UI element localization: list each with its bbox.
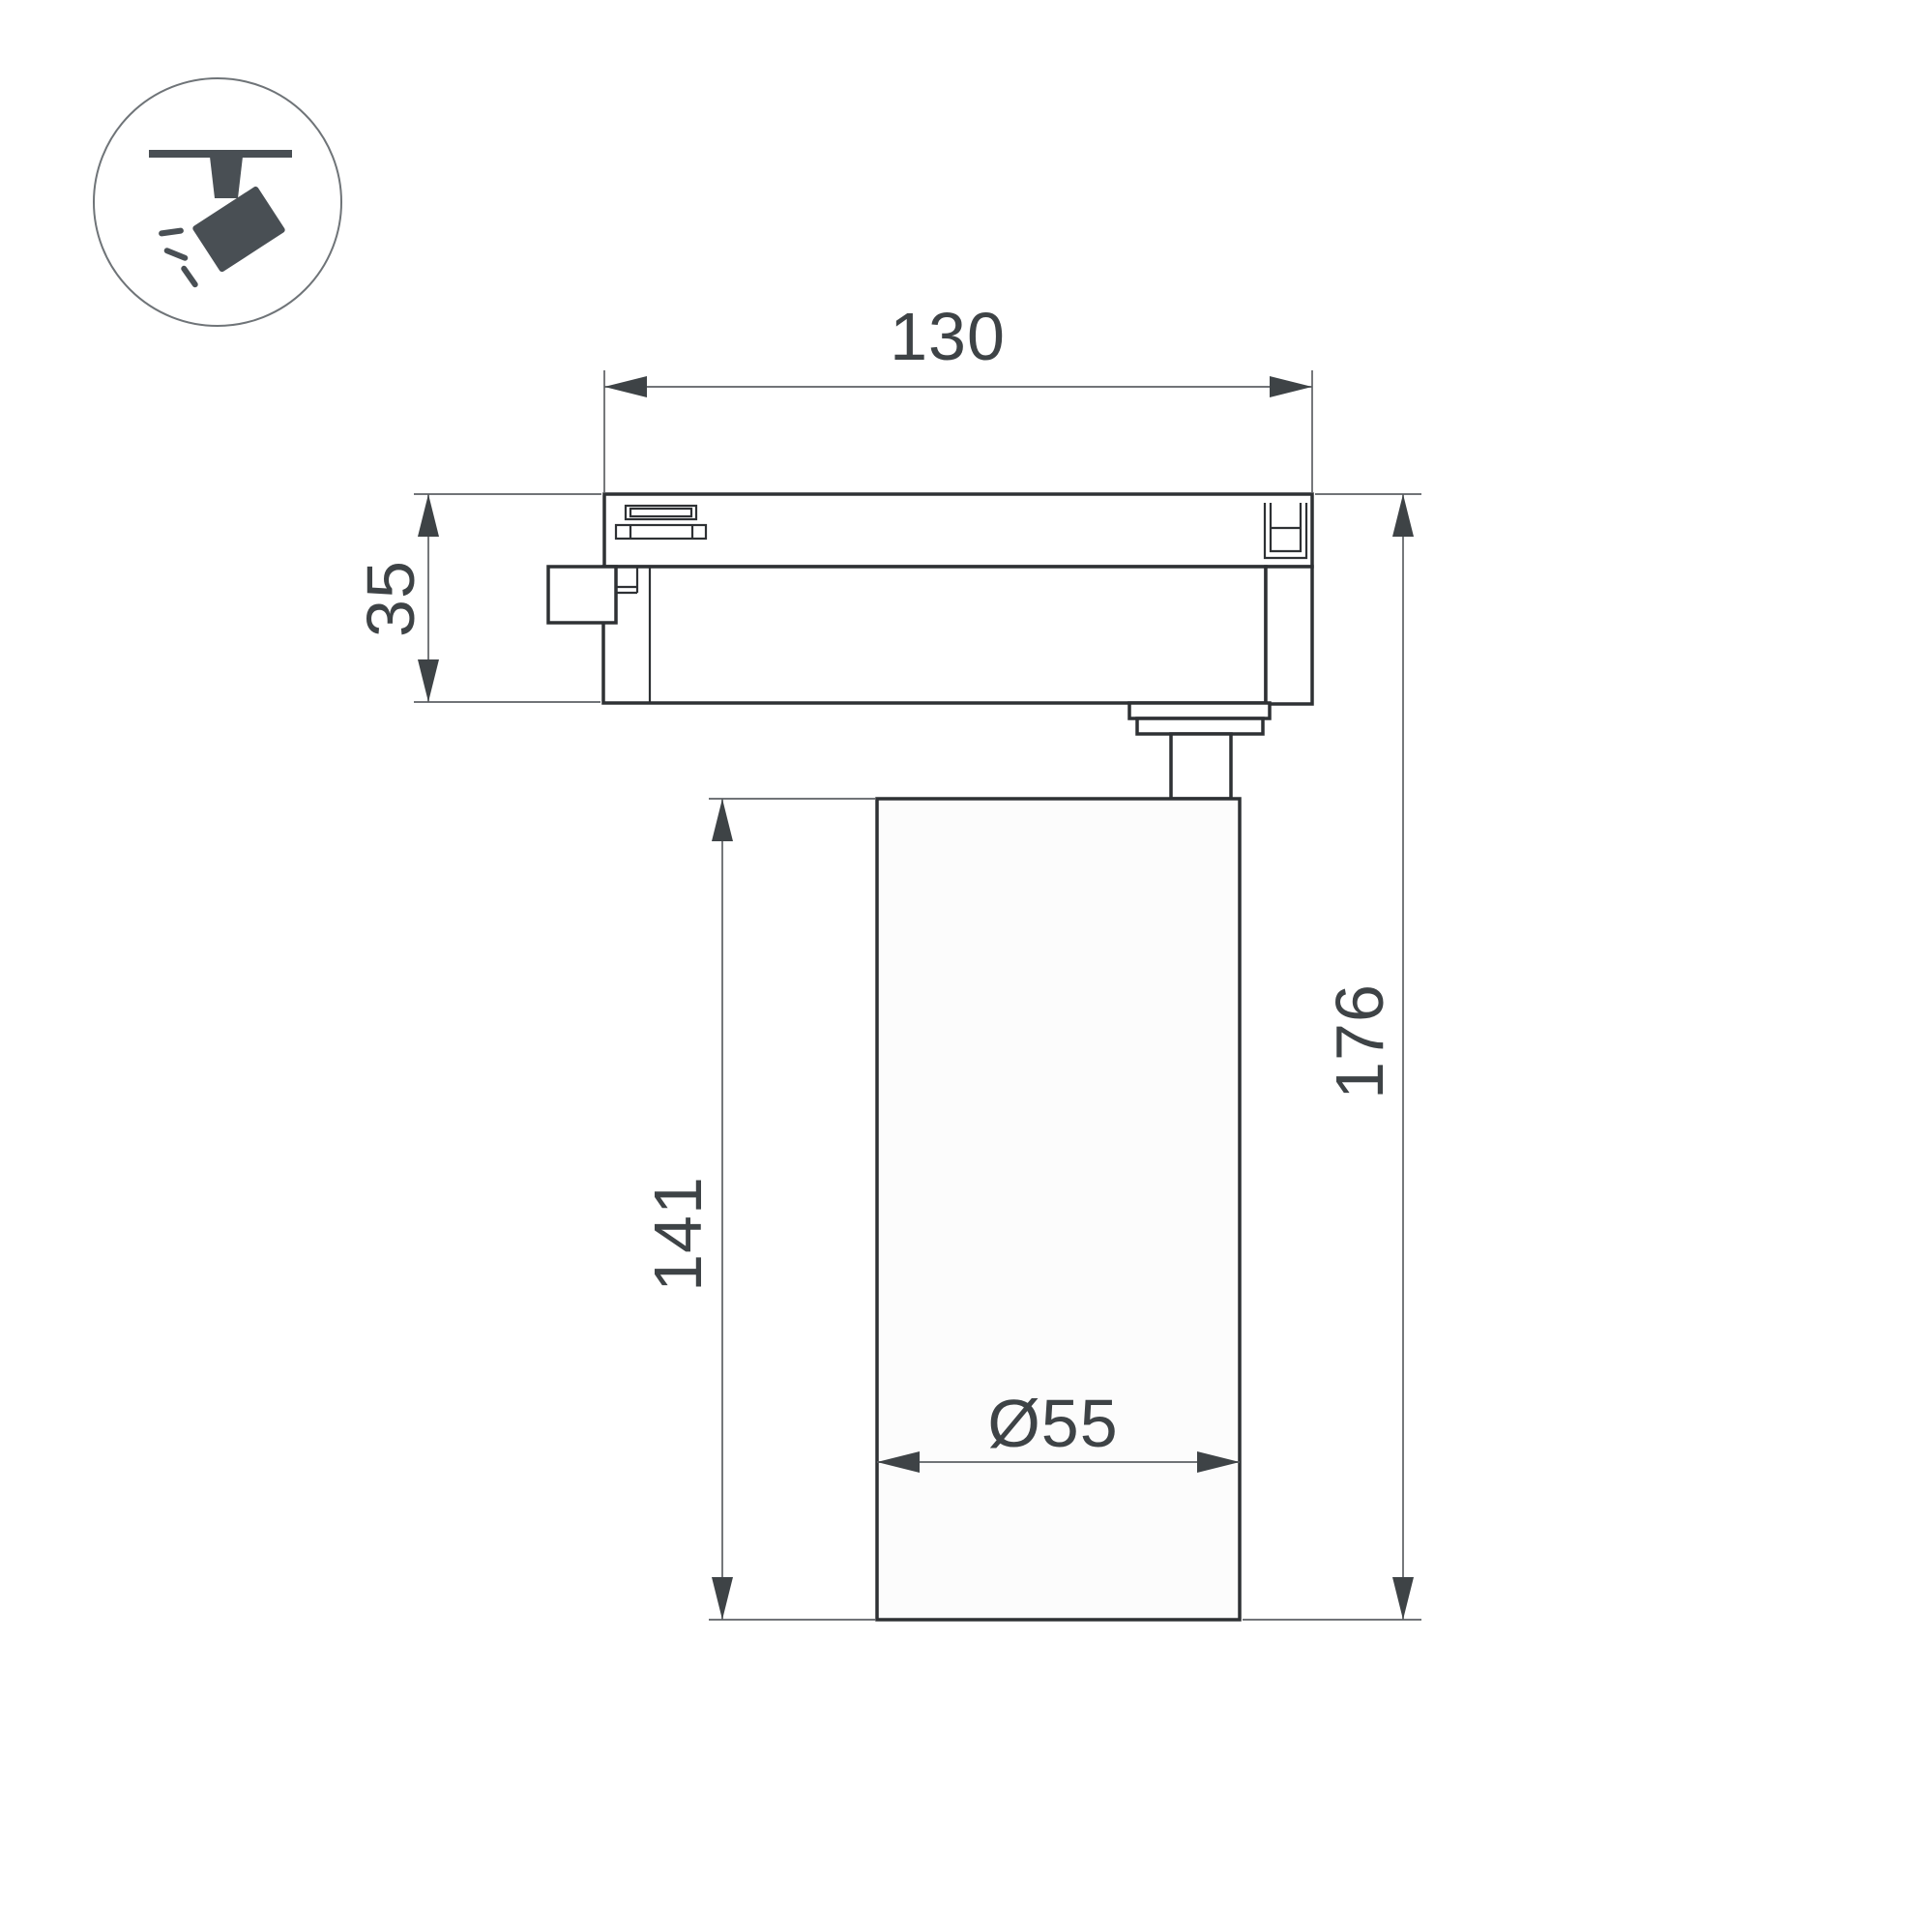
lamp-body (877, 799, 1240, 1620)
stem (1171, 734, 1231, 799)
adapter-lower-housing-right-section (1266, 567, 1312, 704)
dim-130-arrow-right (1270, 376, 1312, 397)
icon-ceiling-track (149, 150, 292, 158)
track-spotlight-icon (94, 78, 341, 326)
dimension-width-130: 130 (604, 299, 1312, 492)
dim-130-label: 130 (890, 299, 1006, 374)
dim-176-label: 176 (1322, 983, 1397, 1099)
dim-35-arrow-top (418, 494, 439, 537)
dim-176-arrow-top (1392, 494, 1414, 537)
adapter-lower-housing (603, 567, 1266, 703)
adapter-switch (548, 567, 616, 623)
dim-141-arrow-top (712, 799, 733, 841)
dim-35-arrow-bottom (418, 659, 439, 702)
stem-flange-upper (1129, 703, 1270, 718)
fixture-drawing (548, 494, 1312, 1620)
dim-141-label: 141 (640, 1176, 716, 1292)
technical-drawing-canvas: 130 35 141 (0, 0, 1932, 1932)
stem-flange-lower (1137, 718, 1263, 734)
dimension-body-height-141: 141 (640, 799, 875, 1620)
dim-35-label: 35 (353, 560, 428, 637)
track-adapter-body (604, 494, 1312, 567)
icon-circle-border (94, 78, 341, 326)
dim-130-arrow-left (604, 376, 647, 397)
icon-track-connector (210, 157, 243, 198)
dim-55-label: Ø55 (987, 1386, 1118, 1461)
dim-141-arrow-bottom (712, 1577, 733, 1620)
drawing-svg: 130 35 141 (0, 0, 1932, 1932)
dim-176-arrow-bottom (1392, 1577, 1414, 1620)
